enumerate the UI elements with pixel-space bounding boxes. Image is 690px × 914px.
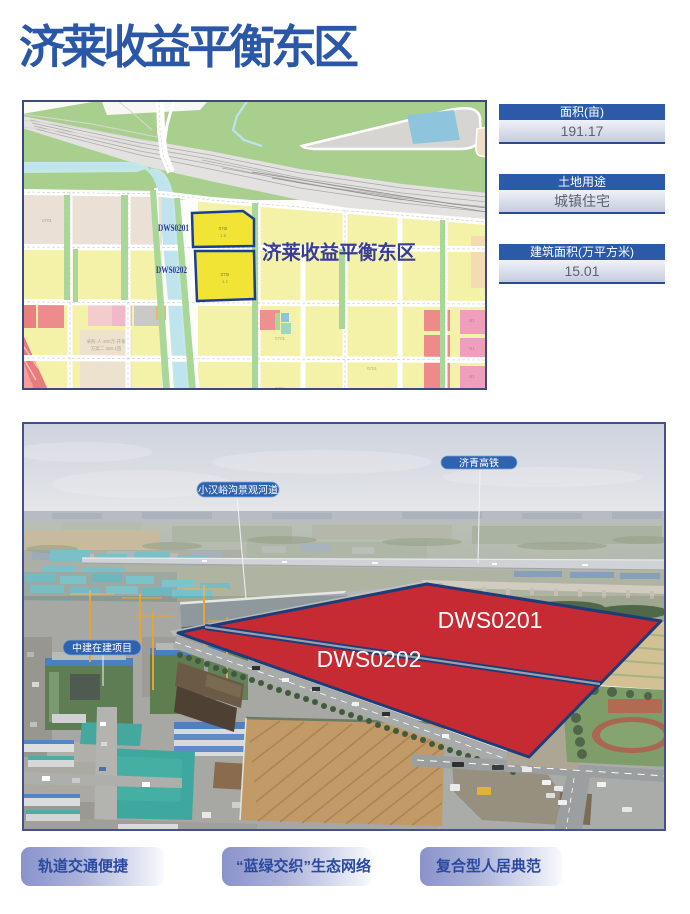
svg-text:070I: 070I [219, 226, 228, 231]
svg-text:DWS0201: DWS0201 [438, 607, 543, 633]
svg-text:小汉峪沟景观河道: 小汉峪沟景观河道 [198, 484, 278, 497]
svg-text:B1: B1 [469, 346, 475, 351]
svg-text:采购·人·200万·开发: 采购·人·200万·开发 [86, 338, 126, 345]
svg-text:DWS0202: DWS0202 [156, 266, 187, 276]
svg-text:0701: 0701 [367, 366, 378, 371]
svg-text:070I: 070I [221, 272, 230, 277]
svg-text:中建在建项目: 中建在建项目 [72, 642, 132, 655]
svg-text:DWS0201: DWS0201 [158, 224, 189, 234]
svg-text:济青高铁: 济青高铁 [459, 457, 499, 470]
svg-text:DWS0202: DWS0202 [317, 646, 422, 672]
svg-text:1.9: 1.9 [220, 233, 227, 238]
svg-text:0701: 0701 [275, 336, 286, 341]
svg-text:B1: B1 [469, 374, 475, 379]
svg-text:方案二 300.1亩: 方案二 300.1亩 [91, 345, 122, 352]
svg-text:0701: 0701 [42, 218, 53, 223]
svg-text:B1: B1 [469, 318, 475, 323]
svg-text:济莱收益平衡东区: 济莱收益平衡东区 [262, 241, 416, 264]
svg-text:1.1: 1.1 [222, 279, 229, 284]
